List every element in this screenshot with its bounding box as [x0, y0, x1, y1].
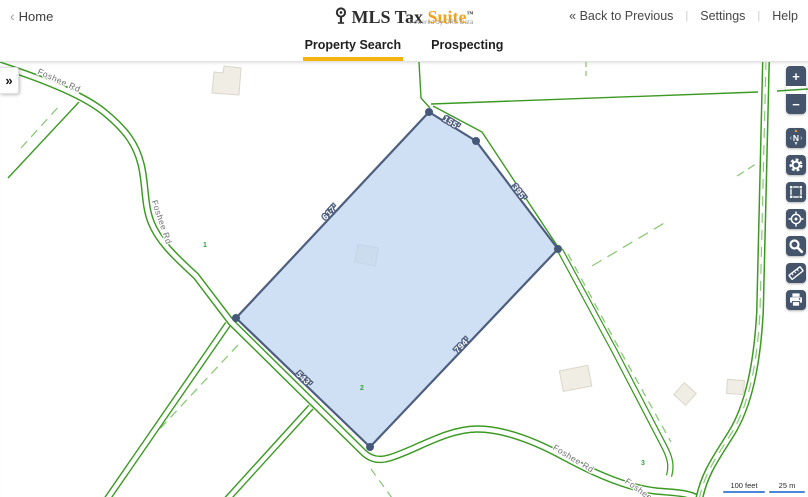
map-settings-button[interactable] — [786, 155, 806, 175]
boundary-line — [419, 62, 430, 108]
zoom-out-button[interactable]: − — [786, 94, 806, 114]
double-chevron-icon: » — [5, 73, 12, 88]
minus-icon: − — [792, 98, 800, 111]
compass-button[interactable]: ▲ ‹ N › ▼ — [786, 128, 806, 148]
building — [727, 379, 745, 394]
gear-icon — [786, 155, 806, 175]
dashed-line — [568, 254, 671, 442]
road-surface — [560, 250, 670, 476]
parcel-polygon[interactable] — [236, 112, 558, 447]
lot-number-label: 1 — [203, 242, 207, 249]
road-name-label: Foshee Rd — [551, 442, 596, 474]
tab-property-search[interactable]: Property Search — [303, 32, 404, 61]
dashed-line — [592, 222, 666, 266]
help-link[interactable]: Help — [772, 9, 798, 23]
dashed-line — [21, 104, 61, 148]
parcel-vertex[interactable] — [425, 108, 433, 116]
parcel-vertex[interactable] — [472, 137, 480, 145]
brand-logo: MLS Tax Suite™Powered by CRS Data — [334, 4, 473, 27]
brand-wordmark: MLS Tax Suite™Powered by CRS Data — [351, 4, 473, 27]
scale-meters: 25 m — [769, 481, 805, 494]
brand-tagline: Powered by CRS Data — [409, 13, 473, 33]
map-pin-icon — [334, 7, 347, 26]
map-toolbar: + − ▲ ‹ N › ▼ — [786, 66, 806, 310]
sidebar-expand-button[interactable]: » — [0, 67, 19, 94]
plus-icon: + — [792, 70, 800, 83]
road-southeast — [560, 250, 671, 476]
map-canvas[interactable]: Foshee Rd Foshee Rd Foshee Rd Foshee Rd … — [0, 61, 808, 497]
rotate-right-icon: › — [800, 135, 802, 142]
print-button[interactable] — [786, 290, 806, 310]
compass-down-icon: ▼ — [794, 142, 799, 147]
dashed-line — [737, 162, 759, 176]
home-link[interactable]: ‹ Home — [10, 8, 53, 24]
measure-button[interactable] — [786, 263, 806, 283]
extent-icon — [786, 182, 806, 202]
mls-tax-suite-app: ‹ Home MLS Tax Suite™Powered by CRS Data… — [0, 0, 808, 497]
parcel-vertex[interactable] — [366, 443, 374, 451]
parcel-vertex[interactable] — [232, 314, 240, 322]
home-label: Home — [19, 9, 54, 24]
compass-icon: ▲ ‹ N › ▼ — [790, 129, 803, 148]
building — [559, 365, 591, 391]
back-to-previous-link[interactable]: « Back to Previous — [569, 9, 673, 23]
locate-button[interactable] — [786, 209, 806, 229]
map-search-button[interactable] — [786, 236, 806, 256]
settings-link[interactable]: Settings — [700, 9, 745, 23]
scale-meters-label: 25 m — [779, 481, 796, 490]
tab-prospecting[interactable]: Prospecting — [429, 32, 505, 61]
map-extent-button[interactable] — [786, 182, 806, 202]
header-nav: « Back to Previous | Settings | Help — [569, 9, 798, 23]
back-chevron-icon: ‹ — [10, 8, 15, 24]
building — [212, 66, 241, 95]
search-icon — [786, 236, 806, 256]
scale-feet-label: 100 feet — [730, 481, 757, 490]
main-tabs: Property Search Prospecting — [0, 32, 808, 61]
dashed-line — [371, 469, 392, 497]
road-centerline-dashed — [699, 62, 766, 497]
parcel-vertex[interactable] — [554, 245, 562, 253]
printer-icon — [786, 290, 806, 310]
lot-number-label: 2 — [360, 385, 364, 392]
measure-ruler-icon — [786, 263, 806, 283]
map-layers: Foshee Rd Foshee Rd Foshee Rd Foshee Rd … — [0, 62, 808, 497]
rotate-left-icon: ‹ — [790, 135, 792, 142]
zoom-control: + − — [786, 66, 806, 114]
lot-number-label: 3 — [641, 460, 645, 467]
boundary-line — [431, 92, 758, 104]
locate-icon — [786, 209, 806, 229]
zoom-in-button[interactable]: + — [786, 66, 806, 86]
map-scale-bar: 100 feet 25 m — [723, 481, 805, 494]
scale-feet-bar — [723, 491, 765, 494]
app-header: ‹ Home MLS Tax Suite™Powered by CRS Data… — [0, 0, 808, 32]
scale-feet: 100 feet — [723, 481, 765, 494]
nav-separator: | — [757, 10, 760, 22]
nav-separator: | — [685, 10, 688, 22]
road-right — [699, 62, 766, 497]
building — [674, 383, 697, 406]
scale-meters-bar — [769, 491, 805, 494]
boundary-line — [8, 102, 79, 178]
